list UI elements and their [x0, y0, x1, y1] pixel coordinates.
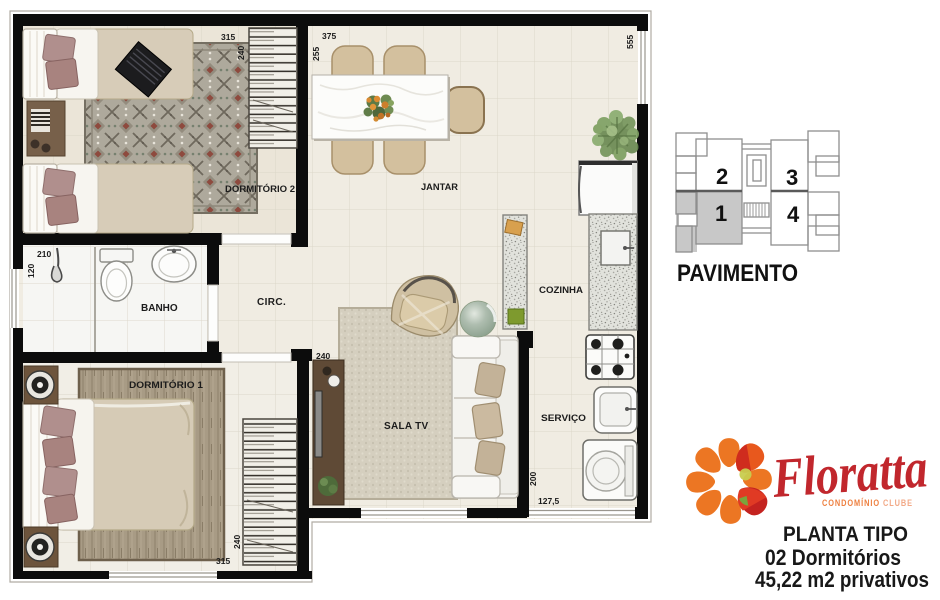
svg-text:SALA TV: SALA TV: [384, 421, 429, 432]
svg-text:BANHO: BANHO: [141, 303, 178, 314]
svg-text:COZINHA: COZINHA: [539, 285, 583, 296]
svg-text:3: 3: [786, 165, 798, 190]
svg-text:45,22 m2 privativos: 45,22 m2 privativos: [755, 567, 929, 592]
svg-text:315: 315: [221, 32, 235, 42]
svg-text:200: 200: [528, 472, 538, 486]
svg-text:DORMITÓRIO 2: DORMITÓRIO 2: [225, 183, 295, 195]
svg-text:2: 2: [716, 164, 728, 189]
svg-text:DORMITÓRIO 1: DORMITÓRIO 1: [129, 379, 204, 391]
svg-text:315: 315: [216, 556, 230, 566]
svg-text:240: 240: [232, 535, 242, 549]
svg-text:240: 240: [316, 351, 330, 361]
svg-text:555: 555: [625, 35, 635, 49]
svg-text:127,5: 127,5: [538, 496, 560, 506]
svg-text:4: 4: [787, 202, 800, 227]
svg-text:CONDOMÍNIO CLUBE: CONDOMÍNIO CLUBE: [822, 498, 913, 509]
svg-text:210: 210: [37, 249, 51, 259]
svg-text:PLANTA TIPO: PLANTA TIPO: [783, 523, 908, 546]
svg-text:120: 120: [26, 264, 36, 278]
svg-text:375: 375: [322, 31, 336, 41]
svg-text:PAVIMENTO: PAVIMENTO: [677, 260, 798, 287]
svg-text:240: 240: [236, 46, 246, 60]
svg-text:CIRC.: CIRC.: [257, 297, 286, 308]
svg-text:255: 255: [311, 47, 321, 61]
svg-text:1: 1: [715, 201, 727, 226]
svg-text:SERVIÇO: SERVIÇO: [541, 413, 586, 424]
svg-text:JANTAR: JANTAR: [421, 182, 458, 193]
